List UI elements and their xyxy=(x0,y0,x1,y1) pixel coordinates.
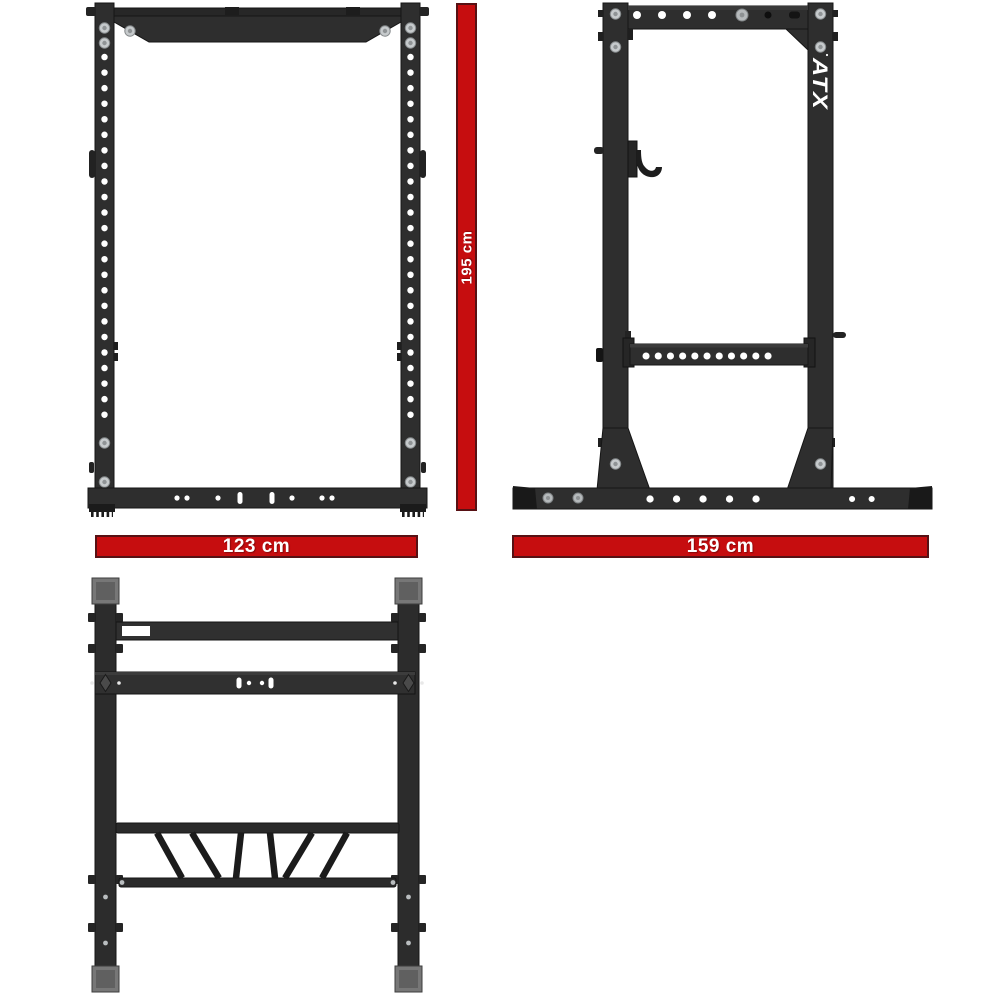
height-dimension-label: 195 cm xyxy=(458,230,475,284)
side-left-upright xyxy=(596,3,628,490)
top-view-diagram xyxy=(85,575,445,995)
front-bolts xyxy=(99,23,415,487)
depth-dimension-label: 159 cm xyxy=(687,536,754,558)
front-base xyxy=(88,488,427,515)
width-dimension-bar: 123 cm xyxy=(95,535,418,558)
side-base-runner xyxy=(513,486,932,509)
atx-logo-text: ATX xyxy=(808,57,831,111)
product-sticker xyxy=(122,626,150,636)
side-view-diagram: ATX xyxy=(510,0,935,517)
atx-logo: ATX xyxy=(808,54,831,111)
front-right-upright xyxy=(397,3,429,493)
top-multigrip-bar xyxy=(116,823,399,887)
front-pullup-bar xyxy=(114,7,401,42)
width-dimension-label: 123 cm xyxy=(223,536,290,558)
depth-dimension-bar: 159 cm xyxy=(512,535,929,558)
corner-gusset xyxy=(786,29,808,50)
front-view-diagram xyxy=(85,0,430,517)
top-crossmember xyxy=(90,672,424,694)
side-gussets xyxy=(597,428,833,490)
top-upper-beam xyxy=(116,622,398,640)
front-left-upright xyxy=(86,3,118,493)
height-dimension-bar: 195 cm xyxy=(456,3,477,511)
product-dimension-diagram: ATX xyxy=(0,0,1000,1000)
side-top-crossmember xyxy=(628,6,935,50)
